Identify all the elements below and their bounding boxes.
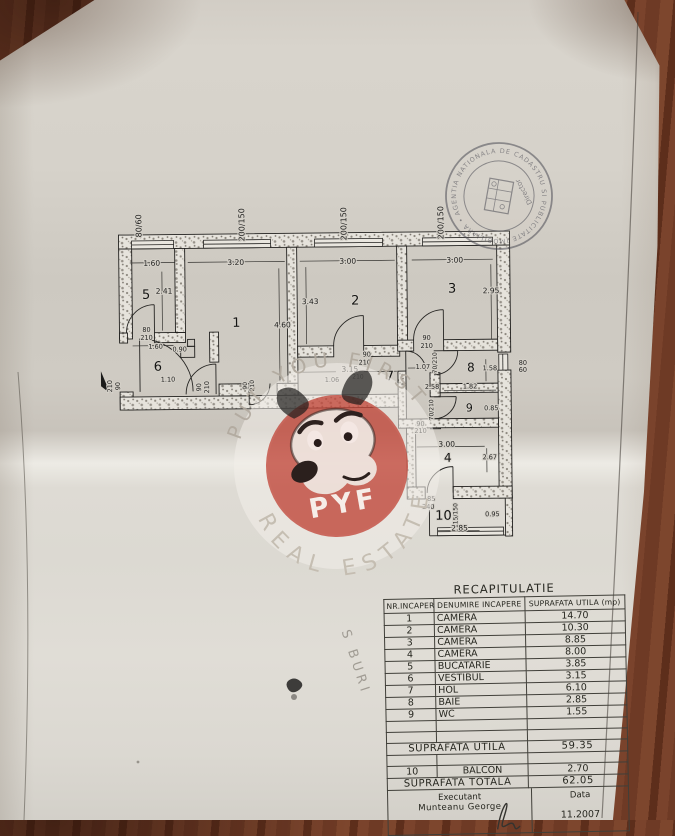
cell-nr: 3 — [385, 637, 435, 650]
recap-table-block: RECAPITULATIE NR.INCAPERE DENUMIRE INCAP… — [383, 579, 630, 836]
balcony-nr: 10 — [387, 765, 437, 778]
signature-scribble — [489, 794, 524, 833]
date-value: 11.2007 — [532, 808, 628, 821]
col-header-denumire: DENUMIRE INCAPERE — [434, 597, 525, 613]
col-header-nr: NR.INCAPERE — [384, 599, 434, 614]
cell-nr: 6 — [385, 673, 435, 686]
recap-table: NR.INCAPERE DENUMIRE INCAPERE SUPRAFATA … — [383, 594, 629, 791]
cell-nr: 7 — [385, 685, 435, 698]
photographed-scan-page: { "plan": { "labels": [ {"t":"80/60","x"… — [0, 0, 675, 820]
cell-nr: 5 — [385, 661, 435, 674]
cell-nr: 1 — [384, 613, 434, 626]
cell-nr: 2 — [384, 625, 434, 638]
recap-table-body: 1CAMERA14.702CAMERA10.303CAMERA8.854CAME… — [384, 609, 627, 722]
recap-table-footer: SUPRAFATA UTILA 59.35 10 BALCON 2.70 SUP… — [386, 717, 628, 791]
cell-nr: 9 — [386, 709, 436, 722]
cell-nr: 8 — [386, 697, 436, 710]
col-header-suprafata: SUPRAFATA UTILA (mp) — [524, 595, 625, 611]
cell-nr: 4 — [385, 649, 435, 662]
executant-cell: Executant Munteanu George — [388, 788, 533, 835]
date-label: Data — [532, 789, 628, 801]
signature-block: Executant Munteanu George Data 11.2007 — [387, 786, 630, 836]
date-cell: Data 11.2007 — [532, 786, 629, 832]
